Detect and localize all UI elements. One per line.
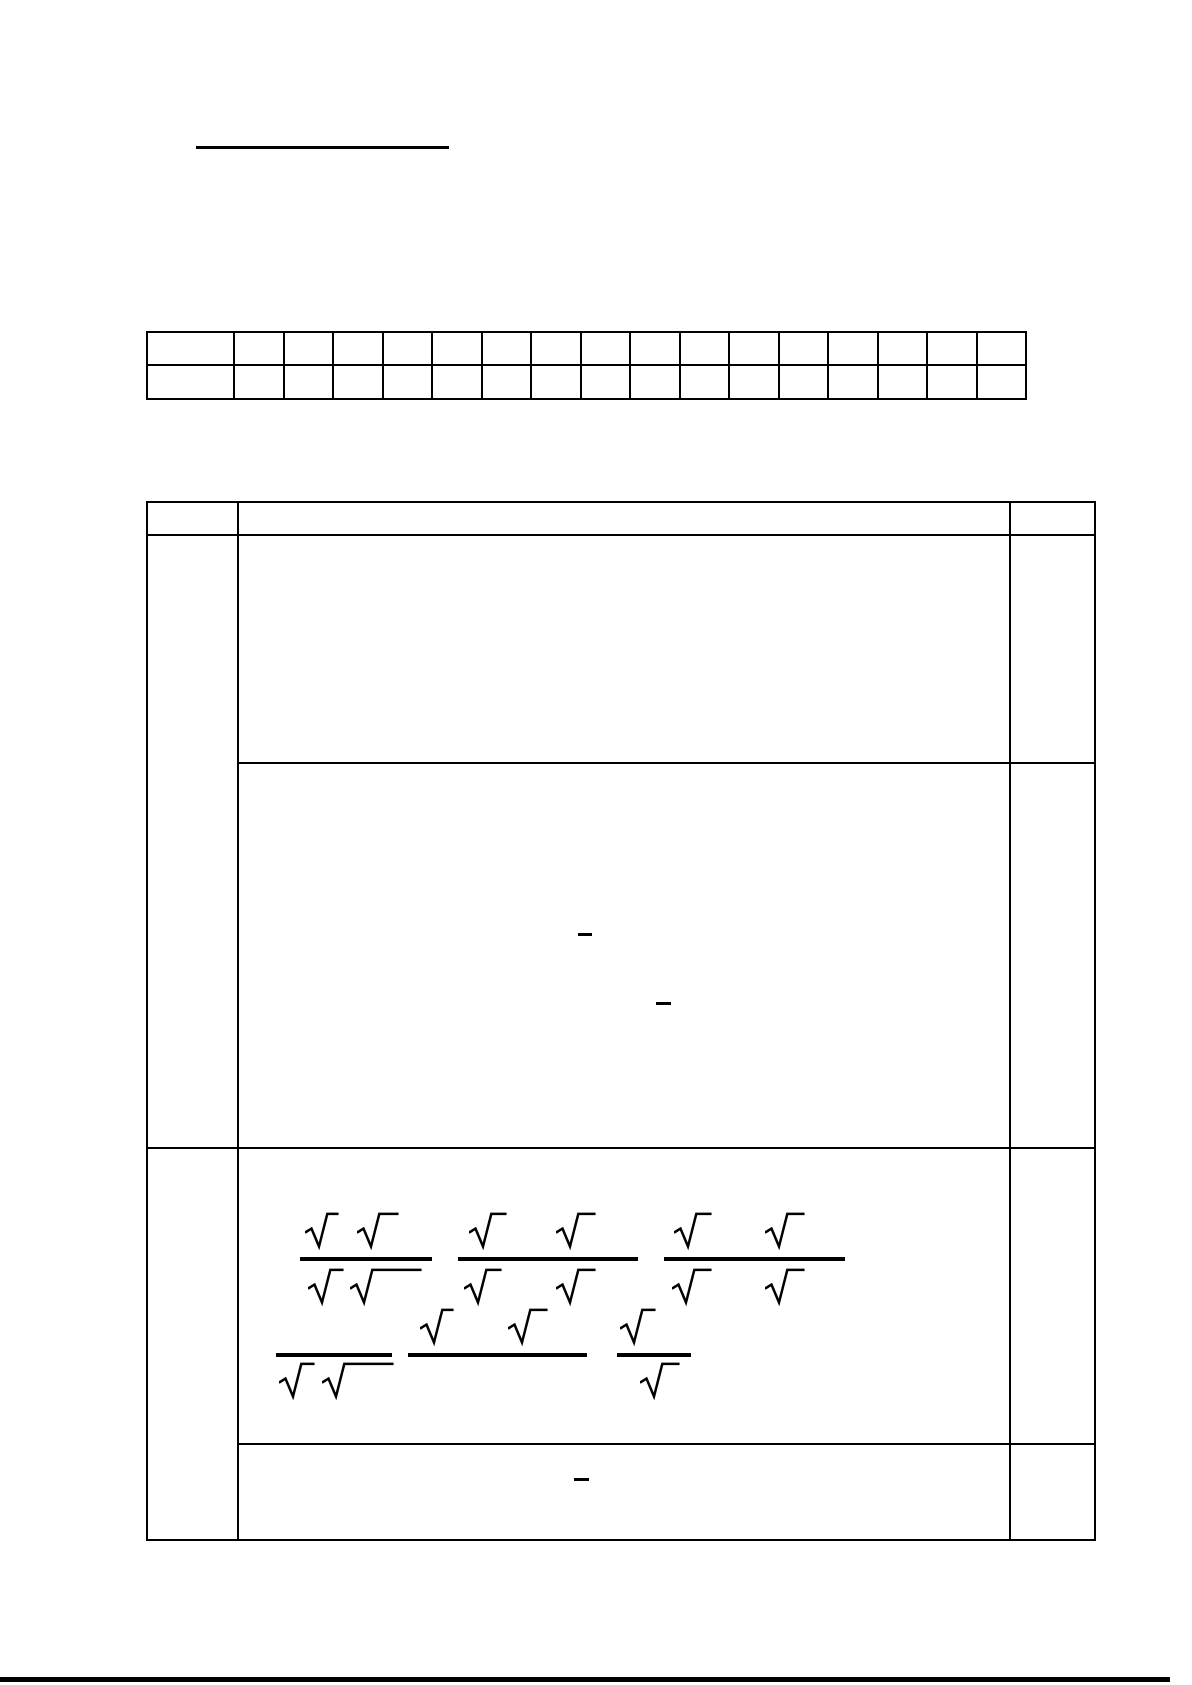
score-cell xyxy=(581,332,631,365)
fraction-bar xyxy=(458,1257,638,1261)
score-cell xyxy=(383,365,433,399)
score-cell xyxy=(828,332,878,365)
worksheet-page xyxy=(0,0,1192,1685)
score-cell xyxy=(234,332,284,365)
score-cell xyxy=(333,365,383,399)
radical-sign xyxy=(508,1307,549,1347)
radical-sign xyxy=(308,1267,345,1307)
radical-sign xyxy=(672,1267,713,1307)
points-cell xyxy=(1010,763,1095,1148)
score-cell xyxy=(531,365,581,399)
score-cell xyxy=(680,365,730,399)
radical-sign xyxy=(469,1211,508,1251)
main-table-row xyxy=(147,502,1095,535)
radical-sign xyxy=(556,1211,597,1251)
fraction-bar xyxy=(617,1353,691,1357)
radical-sign xyxy=(556,1267,597,1307)
score-cell xyxy=(147,332,234,365)
main-table-row xyxy=(147,535,1095,763)
score-cell xyxy=(531,332,581,365)
task-content-cell xyxy=(238,535,1010,763)
score-cell xyxy=(977,332,1027,365)
fraction-bar xyxy=(276,1353,392,1357)
score-cell xyxy=(581,365,631,399)
score-cell xyxy=(482,365,532,399)
radical-sign xyxy=(640,1361,681,1401)
points-cell xyxy=(1010,1444,1095,1540)
fraction-bar xyxy=(408,1353,587,1357)
radical-sign xyxy=(765,1211,806,1251)
radical-sign xyxy=(674,1211,713,1251)
score-cell xyxy=(284,365,334,399)
score-cell xyxy=(927,332,977,365)
main-table-row xyxy=(147,1444,1095,1540)
score-table-row xyxy=(147,365,1026,399)
score-cell xyxy=(147,365,234,399)
points-cell xyxy=(1010,1148,1095,1444)
score-cell xyxy=(878,365,928,399)
fraction-bar xyxy=(664,1257,845,1261)
task-content-cell xyxy=(238,502,1010,535)
score-cell xyxy=(878,332,928,365)
score-cell xyxy=(977,365,1027,399)
score-cell xyxy=(284,332,334,365)
score-table xyxy=(146,331,1027,400)
score-cell xyxy=(927,365,977,399)
task-content-cell xyxy=(238,1444,1010,1540)
score-cell xyxy=(234,365,284,399)
radical-sign xyxy=(620,1307,657,1347)
score-table-row xyxy=(147,332,1026,365)
main-table-row xyxy=(147,763,1095,1148)
score-cell xyxy=(729,332,779,365)
task-number-cell xyxy=(147,1148,238,1540)
points-cell xyxy=(1010,502,1095,535)
radical-sign xyxy=(765,1267,806,1307)
overline-dash xyxy=(578,933,592,936)
overline-dash xyxy=(656,1002,671,1005)
task-number-cell xyxy=(147,535,238,1148)
score-cell xyxy=(432,332,482,365)
score-cell xyxy=(828,365,878,399)
radical-sign xyxy=(357,1211,400,1251)
radical-sign xyxy=(464,1267,503,1307)
score-cell xyxy=(383,332,433,365)
score-cell xyxy=(432,365,482,399)
score-cell xyxy=(779,365,829,399)
points-cell xyxy=(1010,535,1095,763)
score-cell xyxy=(482,332,532,365)
task-content-cell xyxy=(238,763,1010,1148)
radical-sign xyxy=(350,1267,423,1307)
score-cell xyxy=(680,332,730,365)
score-cell xyxy=(630,365,680,399)
score-cell xyxy=(729,365,779,399)
score-cell xyxy=(779,332,829,365)
radical-sign xyxy=(305,1211,340,1251)
radical-sign xyxy=(322,1361,395,1401)
overline-dash xyxy=(574,1478,589,1481)
radical-sign xyxy=(279,1361,316,1401)
score-cell xyxy=(630,332,680,365)
title-underline xyxy=(196,146,449,149)
task-number-cell xyxy=(147,502,238,535)
score-cell xyxy=(333,332,383,365)
footer-rule xyxy=(0,1677,1170,1682)
radical-sign xyxy=(420,1307,455,1347)
fraction-bar xyxy=(300,1257,432,1261)
